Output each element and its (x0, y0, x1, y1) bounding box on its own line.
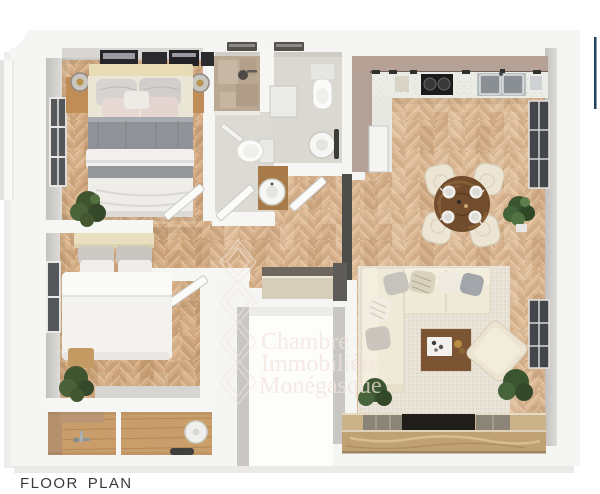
svg-text:Monégasque: Monégasque (259, 373, 382, 399)
svg-text:FLOOR PLAN: FLOOR PLAN (20, 475, 133, 492)
